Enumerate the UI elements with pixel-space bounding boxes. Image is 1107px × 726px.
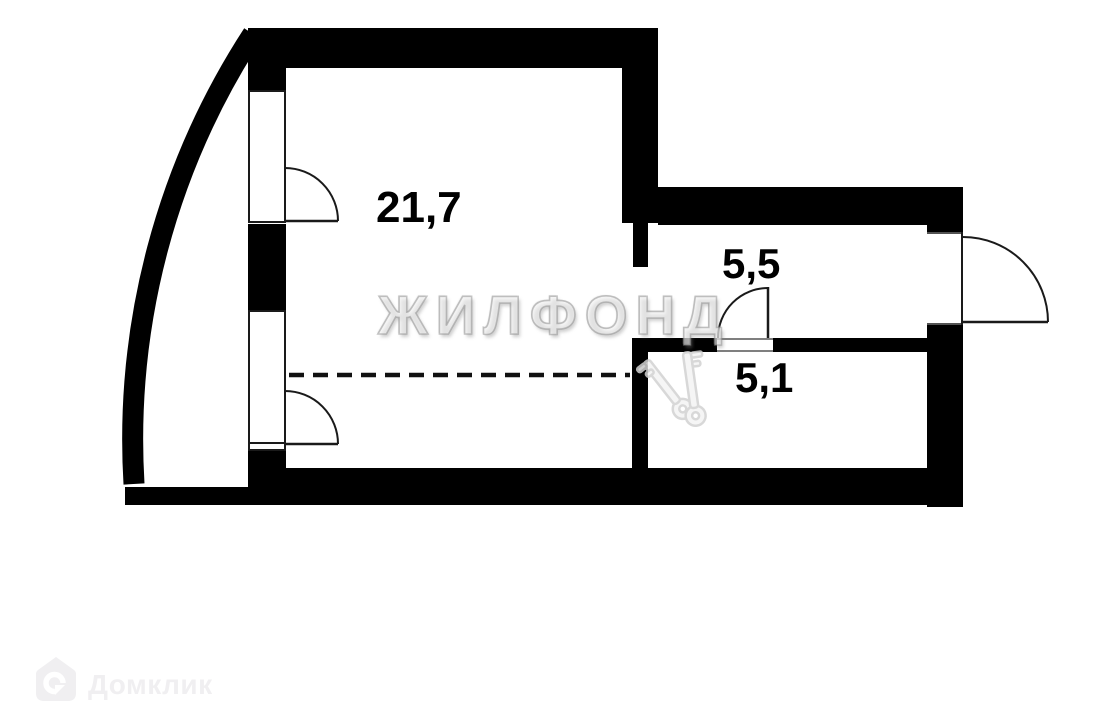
domclick-house-icon — [34, 655, 78, 708]
balcony-door-lower-swing-arc — [285, 391, 338, 444]
area-label-hallway: 5,5 — [722, 243, 780, 285]
portal-logo: Домклик — [34, 655, 213, 708]
window-pier-middle — [248, 224, 286, 311]
entrance-door-opening — [927, 232, 963, 325]
balcony-door-upper-swing-arc — [285, 168, 338, 221]
bottom-wall — [280, 468, 963, 505]
outer-right-wall-upper — [927, 187, 963, 232]
hallway-top-wall — [658, 187, 963, 225]
top-wall — [248, 28, 658, 68]
window-pier-bottom — [248, 449, 286, 505]
portal-logo-text: Домклик — [88, 669, 213, 701]
balcony-window-lower — [249, 311, 285, 443]
floor-plan-image: ЖИЛФОНД 21,7 5,5 5,1 Домклик — [0, 0, 1107, 726]
balcony-window-lower-sill — [249, 443, 285, 450]
entrance-door-swing-arc — [963, 237, 1048, 322]
area-label-main-room: 21,7 — [376, 186, 462, 230]
main-room-right-wall — [622, 28, 658, 223]
window-pier-top — [248, 66, 286, 92]
area-label-bathroom: 5,1 — [735, 357, 793, 399]
crossed-keys-icon — [630, 340, 730, 440]
balcony-window-upper — [249, 91, 285, 222]
hallway-bathroom-wall-right — [773, 338, 927, 352]
partition-stub — [633, 223, 648, 267]
curved-balcony-wall — [133, 34, 253, 484]
floor-plan-drawing — [0, 0, 1107, 726]
agency-watermark: ЖИЛФОНД — [378, 288, 730, 343]
